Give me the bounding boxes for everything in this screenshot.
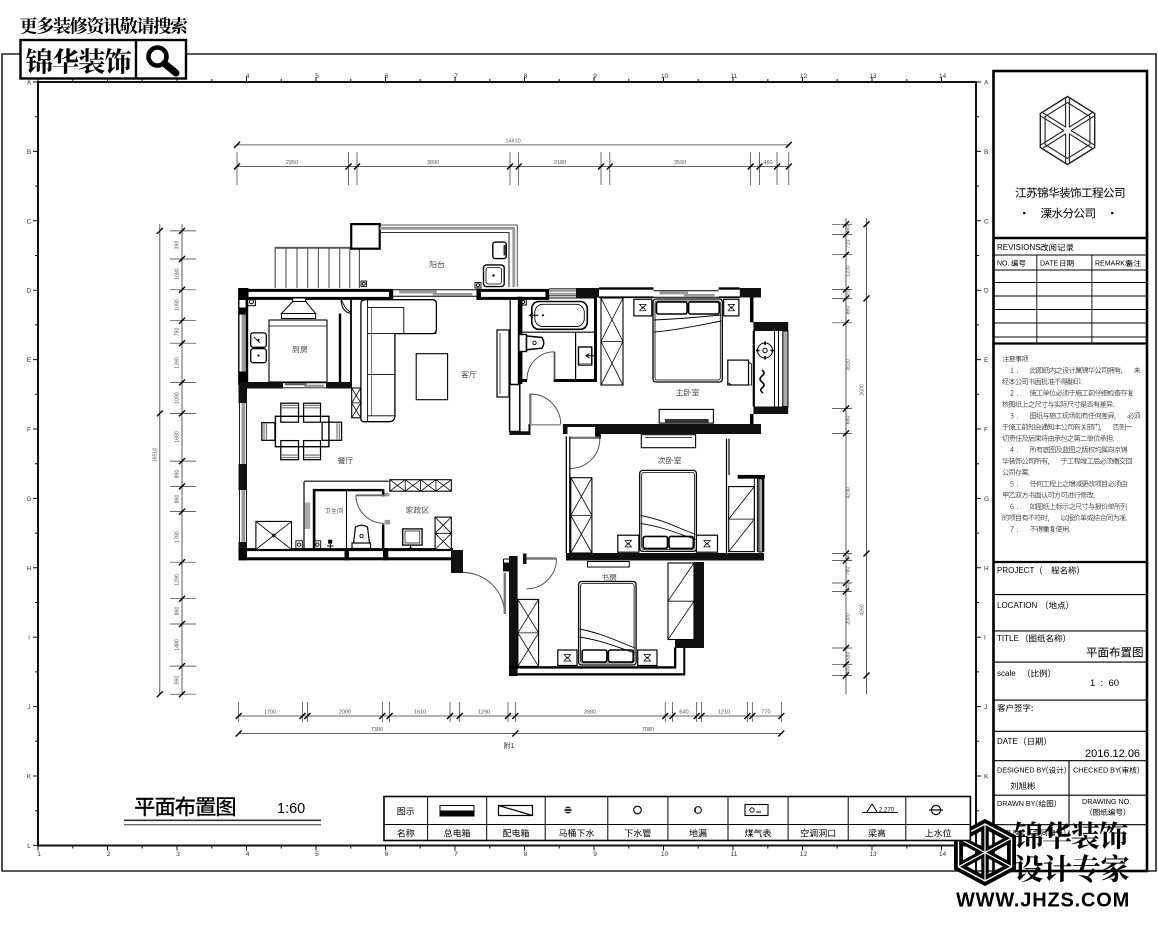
svg-text:2950: 2950 <box>286 160 298 166</box>
svg-text:I: I <box>984 635 986 642</box>
svg-text:2016.12.06: 2016.12.06 <box>1085 748 1140 760</box>
svg-text:4: 4 <box>246 851 250 858</box>
svg-text:7380: 7380 <box>371 727 383 733</box>
svg-text:I: I <box>28 635 30 642</box>
svg-text:860: 860 <box>846 306 852 315</box>
svg-text:580: 580 <box>846 652 852 661</box>
svg-text:13: 13 <box>869 851 877 858</box>
svg-text:890: 890 <box>175 495 181 504</box>
svg-text:790: 790 <box>175 328 181 337</box>
svg-text:10: 10 <box>661 851 669 858</box>
svg-text:G: G <box>26 496 31 503</box>
svg-text:TITLE: TITLE <box>997 634 1019 643</box>
svg-text:1: 1 <box>37 851 41 858</box>
svg-text:1700: 1700 <box>264 710 276 716</box>
svg-text:5: 5 <box>315 851 319 858</box>
svg-text:11: 11 <box>731 73 738 80</box>
svg-text:12: 12 <box>800 851 808 858</box>
svg-text:14: 14 <box>939 851 947 858</box>
svg-text:9: 9 <box>593 73 597 80</box>
svg-text:8: 8 <box>524 73 528 80</box>
svg-text:990: 990 <box>175 676 181 685</box>
svg-text:1680: 1680 <box>175 431 181 443</box>
svg-text:REVISIONS: REVISIONS <box>997 243 1041 252</box>
svg-text:3: 3 <box>176 851 180 858</box>
svg-text:H: H <box>27 565 32 572</box>
svg-text:J: J <box>984 704 987 711</box>
svg-text:9: 9 <box>593 851 597 858</box>
svg-text:E: E <box>984 357 989 364</box>
svg-text:1230: 1230 <box>846 265 852 277</box>
svg-text:DESIGNED BY: DESIGNED BY <box>997 766 1046 775</box>
svg-text:14: 14 <box>939 73 947 80</box>
svg-text:F: F <box>984 427 988 434</box>
svg-text:A: A <box>984 80 989 87</box>
svg-text:13: 13 <box>869 73 877 80</box>
svg-text:890: 890 <box>175 470 181 479</box>
svg-text:C: C <box>984 218 989 225</box>
svg-text:2600: 2600 <box>860 384 866 396</box>
svg-text:F: F <box>27 427 31 434</box>
svg-text:1:60: 1:60 <box>277 801 305 817</box>
svg-text:1080: 1080 <box>175 268 181 280</box>
svg-text:A: A <box>27 80 32 87</box>
svg-text:scale: scale <box>997 669 1016 678</box>
svg-text:640: 640 <box>679 710 688 716</box>
svg-text:780: 780 <box>846 567 852 576</box>
svg-text:11: 11 <box>731 851 738 858</box>
svg-text:16510: 16510 <box>153 448 159 463</box>
svg-text:3890: 3890 <box>427 160 439 166</box>
svg-text:CHECKED BY: CHECKED BY <box>1073 766 1120 775</box>
svg-text:附1: 附1 <box>504 741 515 750</box>
svg-text:710: 710 <box>846 240 852 249</box>
svg-text:L: L <box>27 843 31 850</box>
svg-text:DRAWN BY: DRAWN BY <box>997 799 1036 808</box>
svg-text:1210: 1210 <box>718 710 730 716</box>
svg-text:DATE: DATE <box>1040 261 1058 268</box>
svg-text:770: 770 <box>761 710 770 716</box>
svg-text:1390: 1390 <box>175 357 181 369</box>
svg-text:2000: 2000 <box>846 613 852 625</box>
svg-text:D: D <box>984 288 989 295</box>
svg-text:7: 7 <box>454 851 458 858</box>
svg-text:2.270: 2.270 <box>879 808 895 814</box>
svg-text:310: 310 <box>846 290 852 299</box>
svg-text:390: 390 <box>175 241 181 250</box>
svg-text:3980: 3980 <box>584 710 596 716</box>
svg-text:10: 10 <box>661 73 669 80</box>
svg-text:360: 360 <box>846 225 852 234</box>
svg-text:K: K <box>27 774 32 781</box>
svg-text:B: B <box>27 149 31 156</box>
svg-text:1290: 1290 <box>175 574 181 586</box>
svg-text:4: 4 <box>246 73 250 80</box>
svg-text:NO.: NO. <box>997 261 1010 268</box>
svg-text:1780: 1780 <box>175 531 181 543</box>
svg-text:2: 2 <box>107 851 111 858</box>
svg-text:400: 400 <box>846 666 852 675</box>
svg-text:880: 880 <box>846 416 852 425</box>
svg-text:C: C <box>27 218 32 225</box>
svg-text:1480: 1480 <box>175 639 181 651</box>
svg-text:3590: 3590 <box>674 160 686 166</box>
svg-text:D: D <box>27 288 32 295</box>
svg-text:7: 7 <box>454 73 458 80</box>
svg-text:6: 6 <box>385 851 389 858</box>
svg-text:K: K <box>984 774 989 781</box>
svg-text:B: B <box>984 149 988 156</box>
svg-text:12: 12 <box>800 73 808 80</box>
svg-text:PROJECT: PROJECT <box>997 566 1034 575</box>
svg-text:14610: 14610 <box>505 139 520 145</box>
svg-text:1290: 1290 <box>478 710 490 716</box>
svg-text:6: 6 <box>385 73 389 80</box>
svg-text:DRAWING NO.: DRAWING NO. <box>1082 797 1131 806</box>
svg-text:2000: 2000 <box>339 710 351 716</box>
svg-text:3020: 3020 <box>846 359 852 371</box>
svg-text:G: G <box>984 496 989 503</box>
svg-text:5: 5 <box>315 73 319 80</box>
svg-text:REMARKS: REMARKS <box>1095 261 1130 268</box>
svg-text:7080: 7080 <box>642 727 654 733</box>
svg-text:DATE: DATE <box>997 737 1018 746</box>
svg-text:250: 250 <box>846 553 852 562</box>
svg-text:890: 890 <box>175 607 181 616</box>
svg-text:4230: 4230 <box>846 487 852 499</box>
svg-text:WWW.JHZS.COM: WWW.JHZS.COM <box>956 890 1130 912</box>
svg-text:300: 300 <box>846 583 852 592</box>
svg-text:LOCATION: LOCATION <box>997 601 1038 610</box>
svg-text:1610: 1610 <box>414 710 426 716</box>
svg-text:460: 460 <box>763 160 772 166</box>
svg-text:8: 8 <box>524 851 528 858</box>
svg-text:J: J <box>27 704 30 711</box>
svg-text:2180: 2180 <box>554 160 566 166</box>
svg-text:1 : 60: 1 : 60 <box>1090 678 1119 689</box>
svg-text:1080: 1080 <box>175 299 181 311</box>
svg-text:1090: 1090 <box>175 392 181 404</box>
svg-text:H: H <box>984 565 989 572</box>
svg-text:4260: 4260 <box>860 604 866 616</box>
svg-text:E: E <box>27 357 32 364</box>
